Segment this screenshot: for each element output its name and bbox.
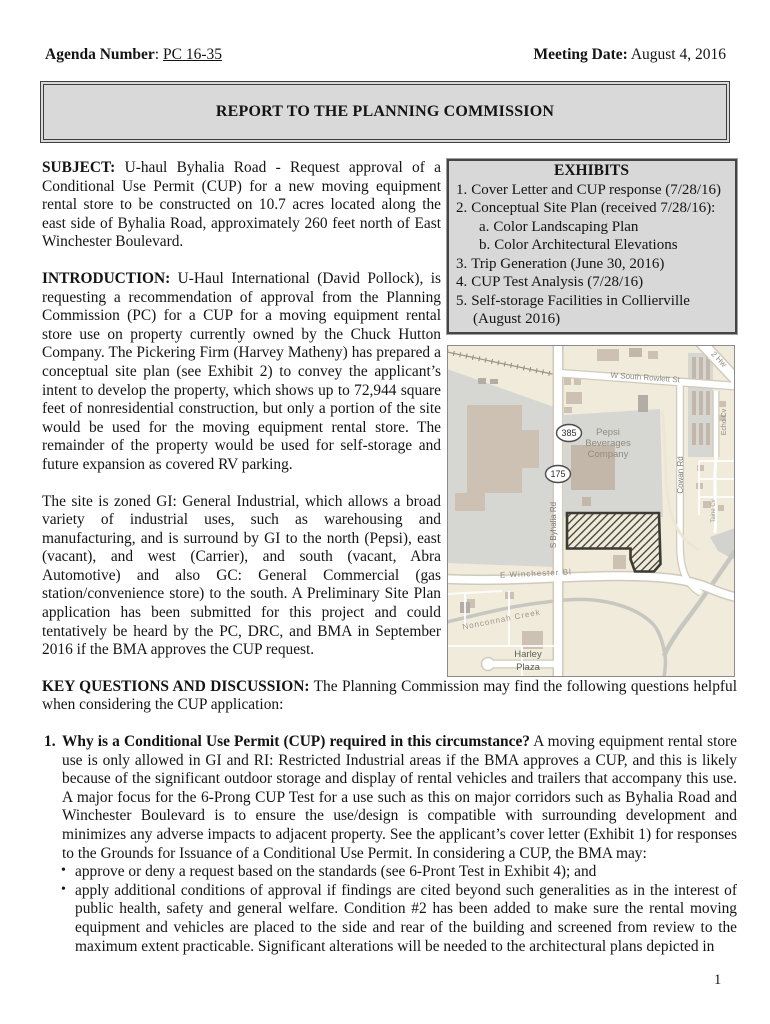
exhibit-item: 2.Conceptual Site Plan (received 7/28/16… (452, 199, 731, 218)
key-questions-label: KEY QUESTIONS AND DISCUSSION: (42, 678, 310, 695)
right-column: EXHIBITS 1.Cover Letter and CUP response… (447, 159, 737, 677)
harley-plaza-label-line2: Plaza (516, 662, 540, 673)
exhibit-text: Color Architectural Elevations (494, 237, 677, 253)
exhibit-number: 2. (456, 200, 467, 216)
meeting-date-value: August 4, 2016 (631, 46, 726, 63)
pepsi-label-line1: Pepsi (596, 427, 620, 438)
harley-plaza-label-line1: Harley (514, 649, 542, 660)
bullet-icon: • (61, 881, 66, 900)
introduction-label: INTRODUCTION: (42, 270, 170, 287)
bullet-1-text: approve or deny a request based on the s… (75, 863, 596, 880)
exhibit-subitem: a.Color Landscaping Plan (452, 218, 731, 237)
page-number: 1 (714, 972, 721, 989)
pepsi-label-line3: Company (588, 449, 629, 460)
report-body: EXHIBITS 1.Cover Letter and CUP response… (42, 159, 737, 956)
location-map-svg: 385 175 W South Rowlett St 2 Hw Pepsi Be… (447, 345, 735, 677)
exhibit-item: 3.Trip Generation (June 30, 2016) (452, 255, 731, 274)
exhibit-number: 3. (456, 256, 467, 272)
exhibit-text: CUP Test Analysis (7/28/16) (471, 274, 643, 290)
report-page: Agenda Number: PC 16-35 Meeting Date: Au… (0, 0, 770, 1024)
route-shield-385-label: 385 (561, 428, 576, 438)
exhibits-title: EXHIBITS (452, 162, 731, 181)
exhibit-item: 1.Cover Letter and CUP response (7/28/16… (452, 181, 731, 200)
question-1-number: 1. (44, 733, 56, 752)
exhibit-text: Trip Generation (June 30, 2016) (471, 256, 664, 272)
agenda-number-value: PC 16-35 (163, 46, 222, 63)
exhibit-text: Self-storage Facilities in Collierville … (471, 293, 690, 328)
exhibit-number: 1. (456, 182, 467, 198)
agenda-number-label: Agenda Number (45, 46, 155, 63)
report-title-box: REPORT TO THE PLANNING COMMISSION (40, 81, 730, 143)
agenda-separator: : (155, 46, 163, 63)
exhibit-number: 4. (456, 274, 467, 290)
exhibits-box: EXHIBITS 1.Cover Letter and CUP response… (447, 159, 737, 334)
question-1-text: A moving equipment rental store use is o… (62, 733, 737, 862)
taine-cove-label: Taine Cv (711, 499, 717, 522)
exhibit-text: Conceptual Site Plan (received 7/28/16): (471, 200, 715, 216)
question-1-bullet-1: •approve or deny a request based on the … (62, 863, 737, 882)
byhalia-road-label: S Byhalia Rd (549, 501, 558, 547)
pepsi-label-line2: Beverages (585, 438, 631, 449)
bullet-icon: • (61, 862, 66, 881)
exhibit-item: 5.Self-storage Facilities in Colliervill… (452, 292, 731, 329)
location-map: 385 175 W South Rowlett St 2 Hw Pepsi Be… (447, 345, 735, 677)
key-questions-paragraph: KEY QUESTIONS AND DISCUSSION: The Planni… (42, 678, 737, 715)
exhibit-number: b. (479, 237, 490, 253)
question-1: 1.Why is a Conditional Use Permit (CUP) … (42, 733, 737, 956)
page-header: Agenda Number: PC 16-35 Meeting Date: Au… (45, 46, 726, 64)
question-1-bullet-2: •apply additional conditions of approval… (62, 882, 737, 956)
meeting-date-label: Meeting Date: (534, 46, 628, 63)
exhibit-text: Cover Letter and CUP response (7/28/16) (471, 182, 721, 198)
exhibit-text: Color Landscaping Plan (493, 219, 638, 235)
bullet-2-text: apply additional conditions of approval … (75, 882, 737, 955)
exhibit-subitem: b.Color Architectural Elevations (452, 236, 731, 255)
exhibit-number: 5. (456, 293, 467, 309)
report-title: REPORT TO THE PLANNING COMMISSION (216, 103, 554, 121)
meeting-date: Meeting Date: August 4, 2016 (534, 46, 726, 64)
introduction-text: U-Haul International (David Pollock), is… (42, 270, 441, 473)
subject-label: SUBJECT: (42, 159, 115, 176)
route-shield-175-label: 175 (550, 469, 565, 479)
cowan-road-label: Cowan Rd (676, 456, 685, 493)
echo-cove-label: Echo Cv (721, 408, 728, 435)
exhibit-item: 4.CUP Test Analysis (7/28/16) (452, 273, 731, 292)
agenda-number: Agenda Number: PC 16-35 (45, 46, 222, 64)
exhibit-number: a. (479, 219, 489, 235)
question-1-bold-lead: Why is a Conditional Use Permit (CUP) re… (62, 733, 530, 750)
